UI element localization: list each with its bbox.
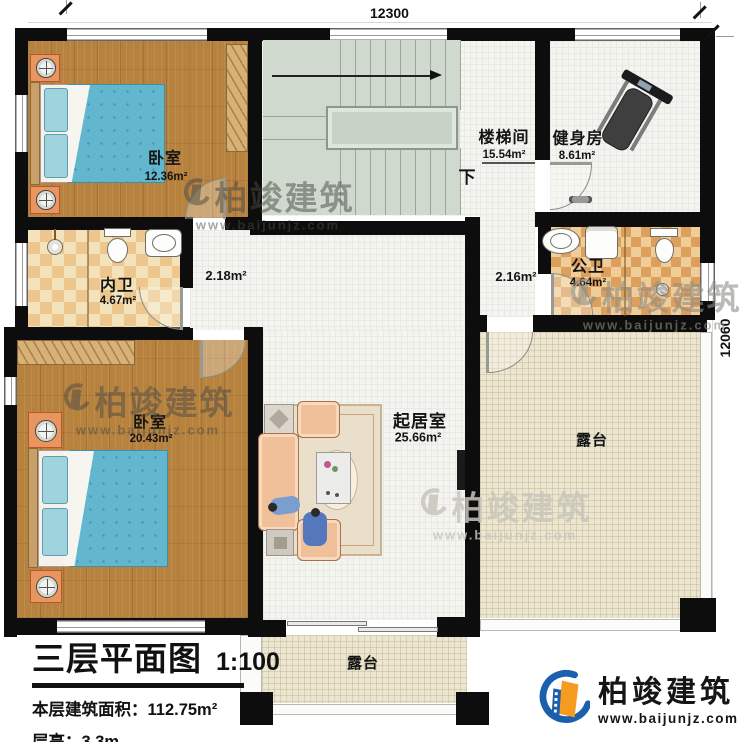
- hall-area-left: 2.18m²: [205, 269, 246, 283]
- room-area-living-room: 25.66m²: [395, 431, 442, 444]
- room-label-bedroom2: 卧室: [133, 416, 167, 433]
- public-bath-partition: [624, 227, 626, 316]
- person: [303, 512, 327, 546]
- door-gym-leaf: [550, 162, 592, 165]
- floor-terrace-right: [480, 332, 700, 618]
- bed-headboard: [30, 82, 40, 185]
- wall-hall-vertical: [465, 217, 480, 320]
- title-underline: [32, 683, 244, 688]
- parapet-right: [700, 332, 712, 619]
- armchair: [297, 401, 340, 438]
- room-label-terrace-right: 露台: [576, 433, 608, 449]
- room-label-stairwell: 楼梯间: [478, 131, 529, 148]
- stairs-lower-flight: [340, 148, 461, 215]
- company-logo-icon: [536, 668, 590, 735]
- floor-height-label: 层高：: [32, 733, 82, 742]
- door-bedroom1-leaf: [223, 178, 226, 219]
- corner-table: [266, 529, 294, 556]
- door-inner-bath-leaf: [180, 287, 183, 330]
- window-left-bedroom1: [15, 95, 28, 152]
- column: [680, 598, 716, 632]
- stairs-rail: [326, 106, 458, 150]
- dimension-right-height: 12060: [717, 314, 733, 362]
- corner-table: [264, 404, 294, 434]
- sink-basin: [152, 234, 176, 252]
- wall-terrace-stub: [465, 315, 487, 332]
- sofa: [258, 433, 299, 531]
- wall-bedroom1-right: [248, 28, 262, 223]
- plan-title: 三层平面图: [32, 632, 202, 680]
- toilet-tank: [650, 228, 678, 237]
- extension-line: [716, 36, 734, 37]
- wall-stair-gym: [535, 28, 550, 160]
- plan-scale: 1:100: [216, 648, 280, 677]
- stairs-direction-arrow: [430, 70, 442, 80]
- pillow: [42, 508, 68, 556]
- pillow: [44, 88, 68, 132]
- stairs-down-label: 下: [459, 169, 476, 187]
- stairs-down-line: [482, 162, 535, 164]
- wall-bedroom2-top: [4, 327, 190, 340]
- door-bedroom2-leaf: [200, 340, 203, 378]
- dimension-top-width: 12300: [370, 5, 409, 21]
- window-left-bedroom2: [4, 377, 17, 405]
- window-top-gym: [575, 28, 680, 41]
- room-area-bedroom2: 20.43m²: [130, 433, 173, 445]
- wall-living-terrace: [465, 332, 480, 620]
- window-top-bedroom1: [67, 28, 207, 41]
- dumbbell: [569, 196, 592, 203]
- shower-head: [656, 283, 669, 296]
- floor-area-label: 本层建筑面积：: [32, 701, 148, 719]
- title-block: 三层平面图 1:100 本层建筑面积：112.75m² 层高：3.3m: [32, 632, 280, 742]
- room-label-living-room: 起居室: [393, 413, 447, 431]
- stairs-direction-line: [272, 75, 432, 77]
- window-left-inner-bath: [15, 243, 28, 306]
- room-label-inner-bath: 内卫: [100, 279, 134, 296]
- company-logo: 柏竣建筑 www.baijunjz.com: [536, 668, 739, 735]
- floor-area-value: 112.75m²: [148, 701, 218, 719]
- pillow: [42, 456, 68, 504]
- closet-bedroom2: [17, 340, 135, 365]
- wall-living-pier-right: [437, 617, 480, 637]
- room-area-stairwell: 15.54m²: [483, 149, 526, 161]
- room-label-public-bath: 公卫: [571, 260, 605, 277]
- door-terrace-leaf: [486, 332, 489, 373]
- closet-bedroom1: [226, 44, 248, 152]
- shower-head: [47, 239, 63, 255]
- inner-bath-partition: [87, 230, 89, 327]
- room-label-bedroom1: 卧室: [148, 152, 182, 169]
- lamp: [35, 420, 57, 442]
- sliding-door-terrace: [358, 627, 438, 632]
- washing-machine: [585, 226, 618, 259]
- room-label-gym: 健身房: [552, 132, 603, 149]
- room-area-bedroom1: 12.36m²: [145, 171, 188, 183]
- wall-left-lower: [4, 327, 17, 637]
- column: [456, 692, 489, 725]
- coffee-table: [316, 452, 351, 504]
- lamp: [36, 576, 58, 598]
- toilet-tank: [104, 228, 131, 237]
- room-area-public-bath: 4.64m²: [570, 277, 606, 289]
- lamp: [36, 190, 56, 210]
- company-website: www.baijunjz.com: [598, 711, 739, 726]
- wall-gym-bottom: [535, 212, 715, 227]
- window-right-public-bath: [700, 263, 715, 301]
- sink-basin: [550, 233, 572, 249]
- floor-plan-drawing: 12300 12060 下: [0, 0, 750, 742]
- outer-face-line-top: [28, 22, 712, 23]
- company-name: 柏竣建筑: [598, 678, 739, 708]
- room-area-gym: 8.61m²: [559, 150, 595, 162]
- lamp: [36, 58, 56, 78]
- wall-inner-bath-right-a: [180, 217, 193, 288]
- floor-hall-right: [480, 160, 535, 317]
- pillow: [44, 134, 68, 178]
- sliding-door-terrace: [287, 621, 367, 626]
- wall-stair-bottom: [250, 221, 472, 235]
- hall-area-right: 2.16m²: [495, 270, 536, 284]
- room-area-inner-bath: 4.67m²: [100, 295, 136, 307]
- floor-height-value: 3.3m: [82, 733, 120, 742]
- door-public-bath-leaf: [551, 273, 554, 315]
- bed-headboard: [28, 448, 38, 568]
- shower-cord: [54, 229, 56, 240]
- tv: [457, 450, 465, 490]
- room-label-terrace-bottom: 露台: [347, 656, 379, 672]
- parapet-right-bottom: [480, 619, 712, 631]
- wall-public-bath-bottom: [533, 315, 707, 332]
